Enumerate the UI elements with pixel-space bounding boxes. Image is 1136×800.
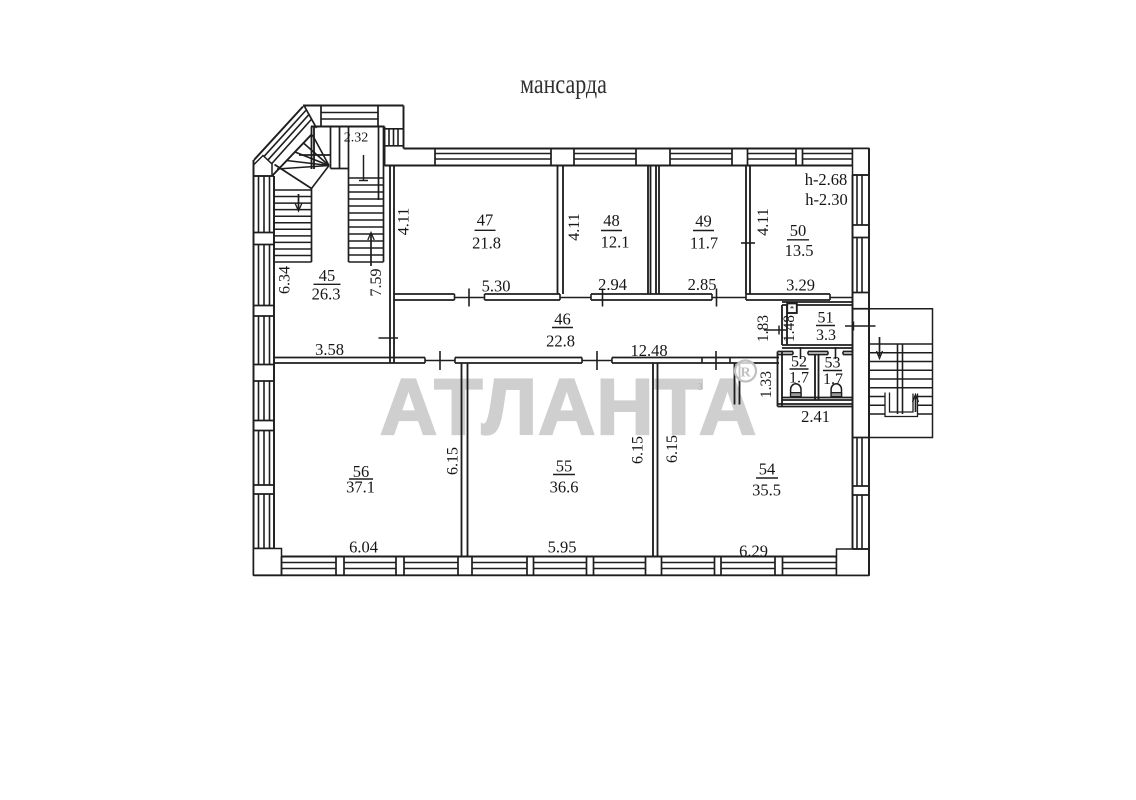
svg-text:50: 50 <box>790 221 807 240</box>
svg-text:4.11: 4.11 <box>396 208 413 235</box>
svg-text:4.11: 4.11 <box>755 208 772 235</box>
svg-text:54: 54 <box>759 460 776 479</box>
svg-text:11.7: 11.7 <box>690 234 718 253</box>
svg-text:1.7: 1.7 <box>823 371 843 388</box>
svg-text:52: 52 <box>791 354 807 371</box>
svg-text:37.1: 37.1 <box>346 478 375 497</box>
svg-text:мансарда: мансарда <box>520 70 607 100</box>
svg-text:1.33: 1.33 <box>758 371 775 398</box>
svg-text:35.5: 35.5 <box>752 481 781 500</box>
svg-text:1.48: 1.48 <box>781 315 798 342</box>
svg-text:2.94: 2.94 <box>598 275 627 294</box>
svg-text:26.3: 26.3 <box>312 285 341 304</box>
svg-text:36.6: 36.6 <box>550 478 579 497</box>
svg-text:3.29: 3.29 <box>786 276 815 295</box>
svg-text:53: 53 <box>825 355 841 372</box>
svg-text:3.58: 3.58 <box>315 340 344 359</box>
svg-text:5.30: 5.30 <box>482 277 511 296</box>
svg-text:21.8: 21.8 <box>472 234 501 253</box>
svg-text:55: 55 <box>556 457 573 476</box>
svg-text:1.83: 1.83 <box>755 315 772 342</box>
svg-text:45: 45 <box>319 266 336 285</box>
svg-text:3: 3 <box>698 382 703 393</box>
svg-text:h-2.68: h-2.68 <box>805 170 848 189</box>
svg-text:2.85: 2.85 <box>688 275 717 294</box>
svg-text:h-2.30: h-2.30 <box>805 190 848 209</box>
svg-text:6.04: 6.04 <box>349 538 378 557</box>
svg-text:R: R <box>740 366 751 381</box>
svg-text:49: 49 <box>695 212 712 231</box>
svg-text:12.48: 12.48 <box>630 341 667 360</box>
svg-text:6.15: 6.15 <box>664 435 681 463</box>
svg-text:46: 46 <box>554 310 571 329</box>
svg-text:АТЛАНТА: АТЛАНТА <box>380 362 756 451</box>
svg-text:4.11: 4.11 <box>566 213 583 240</box>
svg-text:1.7: 1.7 <box>789 370 809 387</box>
svg-text:6.15: 6.15 <box>445 447 462 475</box>
svg-text:5.95: 5.95 <box>548 538 577 557</box>
svg-text:13.5: 13.5 <box>785 241 814 260</box>
svg-text:47: 47 <box>477 211 494 230</box>
svg-text:48: 48 <box>603 211 620 230</box>
svg-text:7.59: 7.59 <box>368 269 385 297</box>
svg-text:2.41: 2.41 <box>801 407 830 426</box>
svg-text:51: 51 <box>818 310 834 327</box>
svg-text:6.29: 6.29 <box>739 542 768 561</box>
svg-text:12.1: 12.1 <box>601 233 630 252</box>
svg-text:2.32: 2.32 <box>344 131 369 146</box>
svg-text:22.8: 22.8 <box>546 332 575 351</box>
svg-text:3.3: 3.3 <box>816 327 836 344</box>
svg-text:6.34: 6.34 <box>277 266 294 294</box>
svg-text:6.15: 6.15 <box>630 436 647 464</box>
